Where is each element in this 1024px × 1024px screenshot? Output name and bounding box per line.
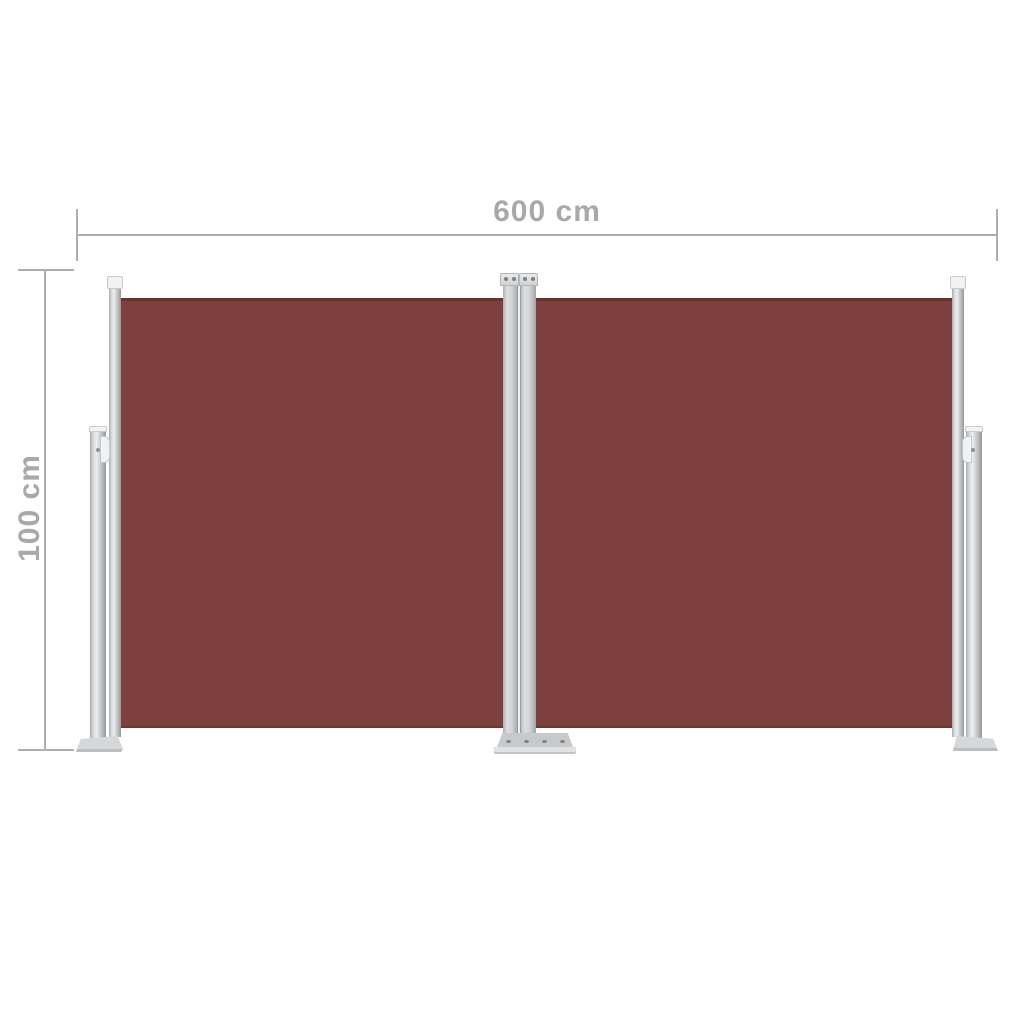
left-handle-pole: [90, 428, 106, 740]
center-cap-rivet: [512, 277, 516, 281]
left-handle-pole-cap: [89, 426, 107, 432]
left-fabric-pole-cap: [107, 276, 123, 289]
width-dimension-line: [77, 234, 997, 236]
left-pull-handle-hook: [100, 436, 110, 463]
right-handle-pole-cap: [965, 426, 983, 432]
center-base-plate-front: [494, 747, 576, 754]
awning-fabric-left-panel: [121, 298, 504, 728]
right-base-plate: [951, 736, 998, 751]
left-fabric-pole: [109, 281, 121, 737]
center-cap-rivet: [531, 277, 535, 281]
center-post-right-cassette: [520, 284, 536, 734]
right-handle-pole: [966, 428, 982, 743]
center-cap-rivet: [523, 277, 527, 281]
center-plate-screw: [506, 740, 511, 743]
height-dimension-tick-top: [18, 269, 74, 271]
center-plate-screw: [524, 740, 529, 743]
height-dimension-line: [44, 270, 46, 751]
width-dimension-tick-left: [76, 209, 78, 261]
width-dimension-label: 600 cm: [447, 195, 647, 229]
product-image: 600 cm 100 cm: [0, 0, 1024, 1024]
left-pull-handle-hole: [96, 448, 100, 452]
left-base-plate: [76, 736, 123, 752]
right-pull-handle-hole: [971, 448, 975, 452]
center-post-left-cassette: [503, 284, 518, 734]
center-post-right-cap: [519, 273, 538, 286]
center-cap-rivet: [504, 277, 508, 281]
height-dimension-tick-bottom: [18, 749, 74, 751]
awning-fabric-right-panel: [536, 298, 954, 728]
right-fabric-pole-cap: [950, 276, 966, 289]
right-fabric-pole: [952, 281, 964, 737]
center-post-left-cap: [500, 273, 519, 286]
center-plate-screw: [560, 740, 565, 743]
width-dimension-tick-right: [996, 209, 998, 261]
center-plate-screw: [542, 740, 547, 743]
